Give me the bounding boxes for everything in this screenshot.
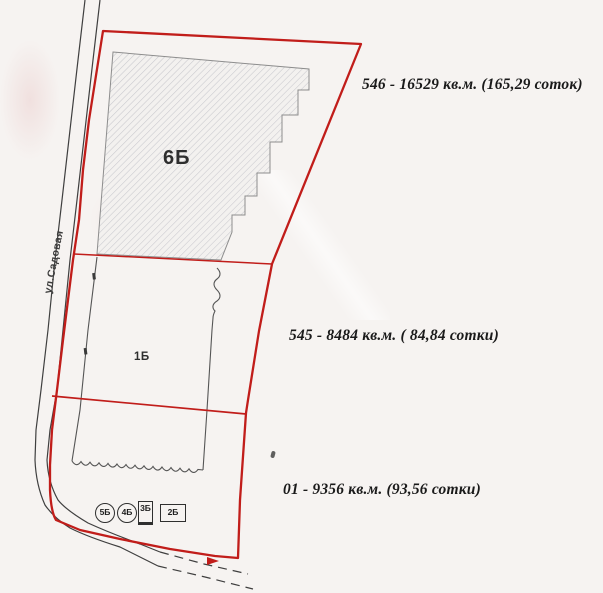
building-marker-5b: 5Б (95, 503, 115, 523)
zone-6b-label: 6Б (163, 147, 191, 170)
road-edge-outer-dashed (158, 566, 253, 589)
zone-1b-label: 1Б (134, 351, 150, 363)
area-annotation-545: 545 - 8484 кв.м. ( 84,84 сотки) (289, 327, 499, 345)
area-annotation-546: 546 - 16529 кв.м. (165,29 соток) (362, 76, 583, 94)
building-marker-4b: 4Б (117, 503, 137, 523)
area-annotation-01: 01 - 9356 кв.м. (93,56 сотки) (283, 481, 481, 499)
building-marker-3b: 3Б (138, 501, 153, 525)
cadastral-plan-scan: ул.Садовая 6Б 1Б 546 - 16529 кв.м. (165,… (0, 0, 603, 593)
building-marker-2b: 2Б (160, 504, 186, 522)
red-divider-545-01 (52, 396, 246, 414)
boundary-arrowhead (207, 557, 219, 565)
hatched-zone-6b (97, 52, 309, 260)
inner-plot-left-edge (72, 257, 97, 461)
inner-plot-bottom-zigzag (72, 461, 203, 472)
survey-tick (84, 348, 88, 355)
inner-plot-right-edge (203, 268, 220, 470)
